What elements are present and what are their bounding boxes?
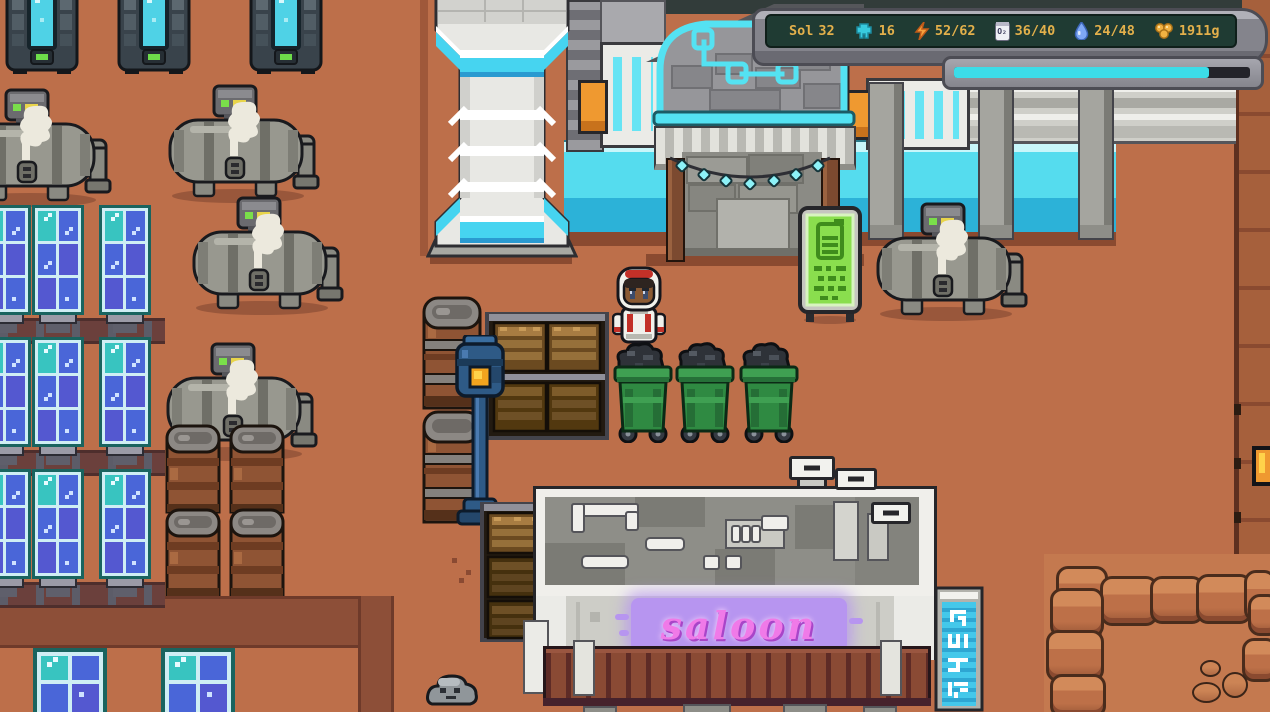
battery-charge-sign-sprite (798, 206, 862, 326)
awning-post (573, 640, 595, 696)
hud-screen: Sol 32 16 52/62 O₂ 36/40 24/48 1911g (765, 14, 1237, 48)
roof-vent-cap (871, 502, 911, 524)
boulder (1050, 674, 1106, 712)
condenser[interactable] (249, 0, 323, 76)
barrels[interactable] (228, 424, 286, 596)
lamp[interactable] (450, 335, 508, 527)
roof-duct (625, 511, 639, 531)
saloon-sign-text: saloon (661, 603, 818, 648)
gray-rock-sprite (424, 670, 480, 708)
saloon-roof (545, 497, 919, 585)
boulder (1248, 594, 1270, 636)
road-vertical (358, 596, 394, 712)
water-readout: 24/48 (1074, 22, 1135, 40)
daytime-progress (942, 56, 1264, 90)
condenser-machine-sprite (249, 0, 323, 76)
tank[interactable] (192, 196, 344, 316)
power-icon (914, 22, 930, 40)
street-lamp-sprite (450, 335, 508, 527)
cliff-tick (1234, 458, 1241, 469)
saloon-building[interactable]: saloon (523, 484, 985, 712)
vertical-neon-sign[interactable] (934, 584, 984, 712)
water-icon (1074, 22, 1089, 40)
barrels[interactable] (164, 424, 222, 596)
solar-panel-sprite (32, 469, 84, 604)
colonists-icon (854, 23, 874, 39)
solar-small[interactable] (33, 648, 107, 712)
solar-panel-sprite (99, 337, 151, 472)
roof-vent (581, 555, 629, 569)
solar[interactable] (0, 205, 31, 340)
solar[interactable] (32, 205, 84, 340)
rust-barrel-stack-sprite (228, 424, 286, 596)
gas-tank-machine-sprite (876, 202, 1028, 322)
condenser[interactable] (117, 0, 191, 76)
cliff-tick (1234, 512, 1241, 523)
solar-panel-sprite (99, 205, 151, 340)
green-bin-sprite (613, 339, 673, 443)
green-bin-sprite (739, 339, 799, 443)
roof-vent-cap (789, 456, 835, 480)
solar[interactable] (32, 469, 84, 604)
pebble (1200, 660, 1221, 677)
roof-vent-cap (835, 468, 877, 490)
pebble (1192, 682, 1221, 703)
money-readout: 1911g (1154, 23, 1220, 39)
money-icon (1154, 23, 1174, 39)
gas-tank-machine-sprite (192, 196, 344, 316)
pillar-base (1080, 225, 1112, 238)
pillar (1080, 84, 1112, 238)
roof-pipe (833, 501, 859, 561)
green-bin-sprite (675, 339, 735, 443)
orange-accent-left (578, 80, 608, 134)
solar-panel-small-sprite (33, 648, 107, 712)
rock[interactable] (424, 670, 480, 708)
tank[interactable] (0, 88, 112, 208)
string-lights (660, 150, 840, 196)
sol-readout: Sol 32 (789, 23, 835, 39)
solar-panel-small-sprite (161, 648, 235, 712)
solar-panel-sprite (0, 205, 31, 340)
glowing-item[interactable] (1252, 446, 1270, 486)
roof-box (703, 555, 720, 570)
solar[interactable] (0, 469, 31, 604)
glowing-item-highlight (1259, 453, 1265, 473)
power-readout: 52/62 (914, 22, 976, 40)
saloon-awning (543, 646, 931, 712)
sol-value: 32 (818, 23, 834, 39)
cliff-tick (1234, 404, 1241, 415)
tank[interactable] (876, 202, 1028, 322)
solar-small[interactable] (161, 648, 235, 712)
money-value: 1911g (1179, 23, 1220, 39)
storage-tower[interactable] (426, 0, 578, 266)
gas-tank-machine-sprite (168, 84, 320, 204)
daytime-progress-fill (954, 67, 1209, 78)
battery-sign[interactable] (798, 206, 862, 326)
oxygen-value: 36/40 (1015, 23, 1056, 39)
roof-vent (645, 537, 685, 551)
saloon-neon-sign: saloon (631, 598, 847, 652)
bin[interactable] (675, 339, 735, 443)
oxygen-icon: O₂ (995, 22, 1010, 41)
solar[interactable] (99, 205, 151, 340)
solar-panel-sprite (0, 469, 31, 604)
rock-plateau (1044, 554, 1270, 712)
solar[interactable] (0, 337, 31, 472)
condenser-machine-sprite (5, 0, 79, 76)
bin[interactable] (613, 339, 673, 443)
condenser-machine-sprite (117, 0, 191, 76)
water-value: 24/48 (1094, 23, 1135, 39)
sol-label: Sol (789, 23, 813, 39)
solar-panel-sprite (0, 337, 31, 472)
solar[interactable] (32, 337, 84, 472)
gas-tank-machine-sprite (0, 88, 112, 208)
power-value: 52/62 (935, 23, 976, 39)
bin[interactable] (739, 339, 799, 443)
awning-post (880, 640, 902, 696)
condenser[interactable] (5, 0, 79, 76)
solar[interactable] (99, 469, 151, 604)
pebble (1222, 672, 1248, 698)
oxygen-readout: O₂ 36/40 (995, 22, 1056, 41)
solar[interactable] (99, 337, 151, 472)
hud: Sol 32 16 52/62 O₂ 36/40 24/48 1911g (752, 8, 1266, 88)
solar-panel-sprite (99, 469, 151, 604)
roof-duct (571, 503, 585, 533)
solar-panel-sprite (32, 337, 84, 472)
colonists-value: 16 (879, 23, 895, 39)
solar-panel-sprite (32, 205, 84, 340)
tank[interactable] (168, 84, 320, 204)
roof-box (725, 555, 742, 570)
daytime-progress-track (954, 67, 1250, 78)
boulder (1242, 638, 1270, 682)
rust-barrel-stack-sprite (164, 424, 222, 596)
colonists-readout: 16 (854, 23, 895, 39)
game-viewport: saloon (0, 0, 1270, 712)
